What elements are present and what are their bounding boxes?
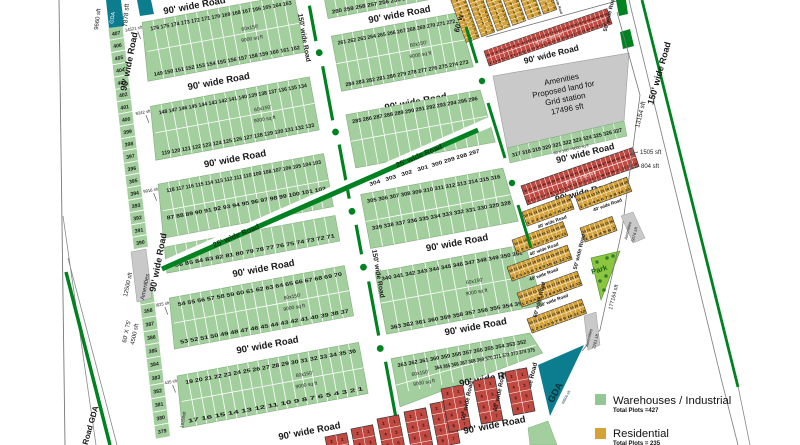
- svg-text:Total Plots =427: Total Plots =427: [613, 408, 659, 414]
- svg-text:Warehouses / Industrial: Warehouses / Industrial: [613, 395, 731, 407]
- svg-text:1505 sft: 1505 sft: [640, 150, 662, 156]
- svg-text:Total Plots = 235: Total Plots = 235: [613, 441, 661, 445]
- svg-text:Residential: Residential: [613, 428, 669, 440]
- svg-text:804 sft: 804 sft: [641, 164, 659, 170]
